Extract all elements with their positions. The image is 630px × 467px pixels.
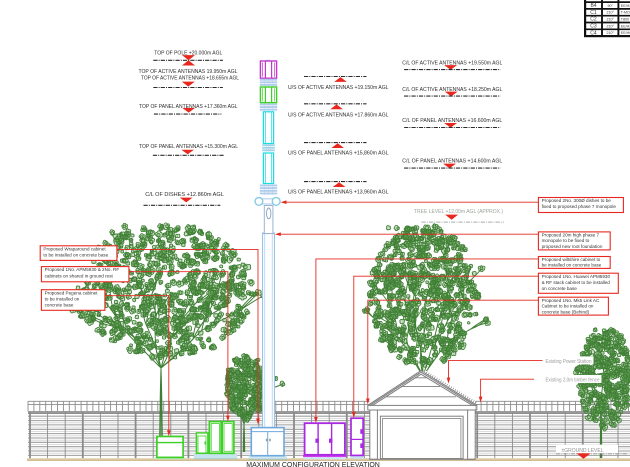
svg-text:Proposed Pegena cabinet: Proposed Pegena cabinet xyxy=(45,290,99,295)
svg-text:T800: T800 xyxy=(621,18,629,22)
svg-text:Proposed Wraparound cabinet: Proposed Wraparound cabinet xyxy=(43,246,106,251)
svg-text:C4: C4 xyxy=(590,30,597,36)
svg-text:& RF stack cabinet to be insta: & RF stack cabinet to be installed xyxy=(542,280,611,285)
svg-text:210°: 210° xyxy=(606,18,614,22)
svg-text:Proposed 2No. 300Ø dishes to b: Proposed 2No. 300Ø dishes to be xyxy=(542,198,612,203)
svg-text:Existing Power Station: Existing Power Station xyxy=(546,359,592,365)
svg-text:210°: 210° xyxy=(606,31,614,35)
svg-text:concrete base (Behind): concrete base (Behind) xyxy=(542,309,590,314)
svg-text:TOP OF PANEL ANTENNAS +15.300m: TOP OF PANEL ANTENNAS +15.300m AGL xyxy=(139,144,239,150)
svg-text:Proposed 1No. Mk5 Link AC: Proposed 1No. Mk5 Link AC xyxy=(542,298,600,303)
svg-text:U/S OF PANEL ANTENNAS +13,960m: U/S OF PANEL ANTENNAS +13,960m AGL xyxy=(288,190,389,196)
svg-text:EE/H3: EE/H3 xyxy=(621,4,630,8)
svg-text:±GROUND LEVEL: ±GROUND LEVEL xyxy=(562,448,605,454)
svg-text:C2: C2 xyxy=(590,17,597,23)
svg-text:U/S OF PANEL ANTENNAS +15,860m: U/S OF PANEL ANTENNAS +15,860m AGL xyxy=(288,151,389,157)
svg-text:TREE LEVEL +12,00m AGL (APPROX: TREE LEVEL +12,00m AGL (APPROX.) xyxy=(414,209,503,215)
svg-text:cabinets on shared in ground r: cabinets on shared in ground rest xyxy=(45,273,114,278)
svg-text:MAXIMUM CONFIGURATION ELEVATIO: MAXIMUM CONFIGURATION ELEVATION xyxy=(246,460,379,467)
svg-text:proposed new root foundation: proposed new root foundation xyxy=(542,244,603,249)
svg-text:fixed to proposed phase 7 mono: fixed to proposed phase 7 monopole xyxy=(542,204,617,209)
svg-text:C/L OF DISHES +12.860m AGL: C/L OF DISHES +12.860m AGL xyxy=(145,192,224,198)
svg-text:C3: C3 xyxy=(590,24,597,30)
svg-text:to be installed on: to be installed on xyxy=(45,297,80,302)
svg-text:210°: 210° xyxy=(606,11,614,15)
svg-text:210°: 210° xyxy=(606,24,614,28)
svg-text:Cabinet to be installed on: Cabinet to be installed on xyxy=(542,304,594,309)
svg-text:Proposed 20m high phase 7: Proposed 20m high phase 7 xyxy=(542,233,600,238)
svg-text:TOP OF ACTIVE ANTENNAS +18.655: TOP OF ACTIVE ANTENNAS +18.655m AGL xyxy=(141,76,240,82)
svg-text:monopole to be fixed to: monopole to be fixed to xyxy=(542,238,590,243)
svg-text:to be installed on concrete ba: to be installed on concrete base xyxy=(43,252,108,257)
svg-text:Existing 2,0m timber fence: Existing 2,0m timber fence xyxy=(546,377,600,383)
svg-text:Proposed 1No. Huawei APM5930: Proposed 1No. Huawei APM5930 xyxy=(542,274,611,279)
svg-text:90°: 90° xyxy=(607,4,613,8)
svg-text:Proposed wiltshire cabinet to: Proposed wiltshire cabinet to xyxy=(542,257,601,262)
svg-text:Proposed 1No. APM5930 & 2No. R: Proposed 1No. APM5930 & 2No. RF xyxy=(45,267,120,272)
svg-text:EE/HO: EE/HO xyxy=(621,31,630,35)
svg-text:C1: C1 xyxy=(590,10,597,16)
svg-text:be installed on concrete base: be installed on concrete base xyxy=(542,263,602,268)
svg-text:TOP OF ACTIVE ANTENNAS 19.950m: TOP OF ACTIVE ANTENNAS 19.950m AGL xyxy=(139,69,239,75)
svg-text:concrete base: concrete base xyxy=(45,303,74,308)
svg-text:EE/H3: EE/H3 xyxy=(621,24,630,28)
svg-text:U/S OF ACTIVE ANTENNAS +19.150: U/S OF ACTIVE ANTENNAS +19.150m AGL xyxy=(288,85,389,91)
svg-text:on concrete base: on concrete base xyxy=(542,286,578,291)
svg-text:U/S OF ACTIVE ANTENNAS +17.860: U/S OF ACTIVE ANTENNAS +17.860m AGL xyxy=(288,113,389,119)
svg-text:B4: B4 xyxy=(590,3,596,9)
svg-text:T-MOB: T-MOB xyxy=(621,11,630,15)
